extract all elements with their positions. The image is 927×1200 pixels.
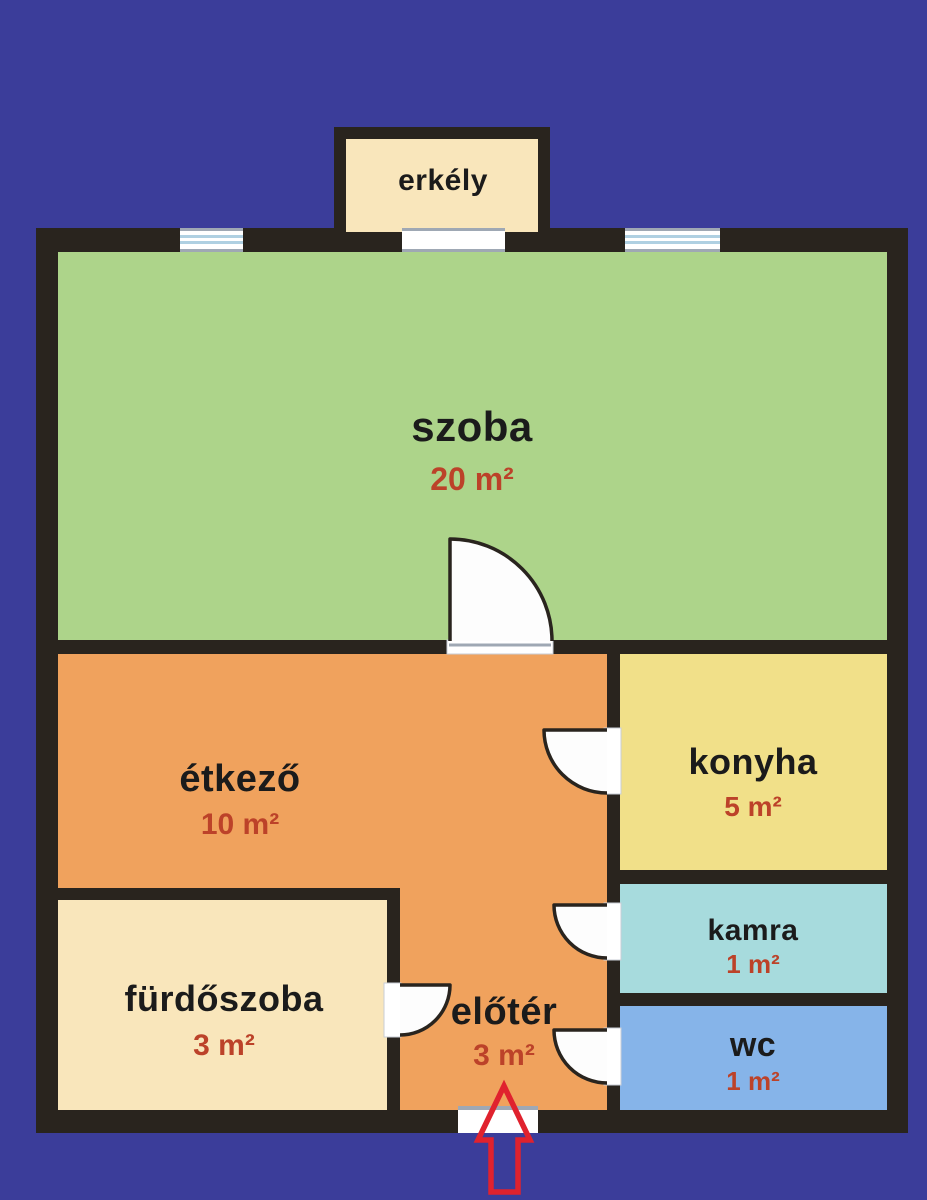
room-area-konyha: 5 m²	[724, 793, 782, 821]
room-area-szoba: 20 m²	[430, 463, 514, 495]
room-label-szoba: szoba	[411, 406, 533, 448]
room-area-kamra: 1 m²	[726, 951, 779, 977]
room-area-eloter: 3 m²	[473, 1041, 535, 1071]
room-label-eloter: előtér	[451, 993, 557, 1031]
balcony-door-opening	[402, 228, 505, 252]
room-area-furdoszoba: 3 m²	[193, 1031, 255, 1061]
room-label-konyha: konyha	[688, 744, 817, 780]
floorplan-canvas: erkély szoba 20 m² étkező 10 m² konyha 5…	[0, 0, 927, 1200]
room-label-wc: wc	[730, 1028, 776, 1062]
room-label-kamra: kamra	[708, 916, 799, 946]
entrance-opening	[458, 1106, 538, 1133]
room-label-furdoszoba: fürdőszoba	[125, 981, 324, 1017]
room-label-etkezo: étkező	[179, 760, 300, 798]
window-icon	[180, 228, 243, 252]
room-area-etkezo: 10 m²	[201, 810, 279, 840]
window-icon	[625, 228, 720, 252]
room-label-erkely: erkély	[398, 166, 488, 196]
room-area-wc: 1 m²	[726, 1068, 779, 1094]
